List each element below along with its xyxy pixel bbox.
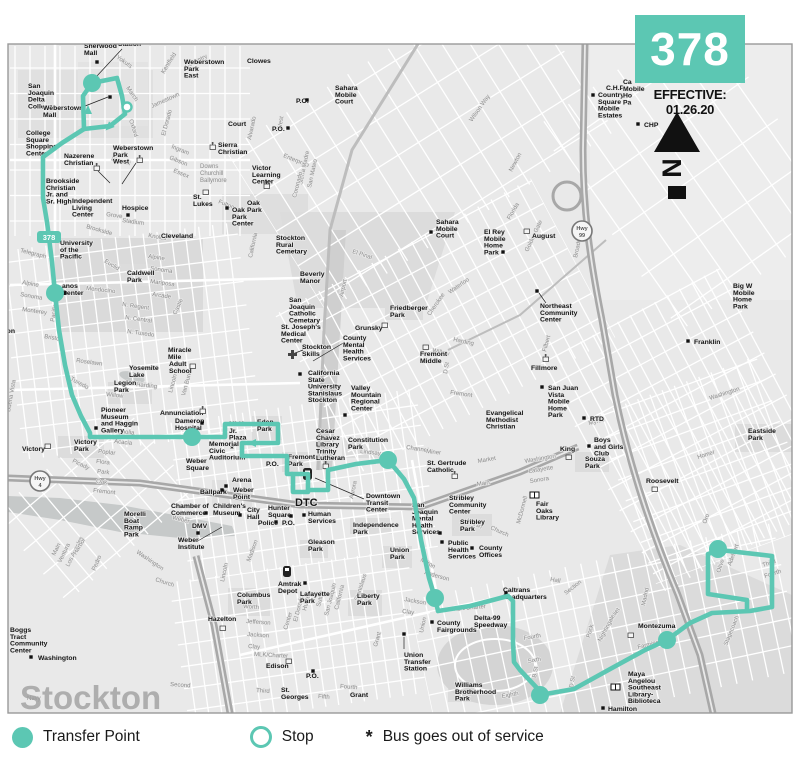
poi-marker	[302, 513, 305, 516]
stop-label: Stop	[282, 728, 314, 746]
poi-label: Edison	[266, 663, 289, 670]
poi-label: CHP	[644, 122, 659, 129]
poi-label: RTD	[590, 416, 604, 423]
compass-letter: N	[657, 158, 687, 178]
poi-label: Clowes	[247, 58, 271, 65]
poi-marker	[126, 213, 129, 216]
poi-marker	[311, 669, 314, 672]
poi-marker	[438, 531, 441, 534]
bldg-icon	[566, 455, 572, 460]
poi-marker	[601, 706, 604, 709]
street-label: Ballymore	[200, 178, 227, 184]
poi-marker	[220, 488, 223, 491]
poi-marker	[298, 372, 301, 375]
bldg-icon	[190, 364, 196, 369]
transfer-point-marker	[426, 589, 444, 607]
poi-marker	[108, 95, 111, 98]
asterisk-icon: *	[366, 727, 373, 748]
bldg-icon	[45, 444, 51, 449]
route-number: 378	[650, 22, 730, 76]
poi-label: Hazelton	[208, 616, 236, 623]
poi-marker	[591, 93, 594, 96]
transfer-point-icon	[12, 727, 33, 748]
poi-marker	[29, 655, 32, 658]
poi-marker	[305, 98, 308, 101]
poi-label: Chamber ofCommerce	[171, 503, 210, 517]
poi-marker	[303, 581, 306, 584]
poi-marker	[224, 484, 227, 487]
street-label: Downs	[200, 164, 218, 170]
poi-label: Washington	[38, 655, 77, 662]
transfer-point-marker	[531, 686, 549, 704]
poi-label: Montezuma	[638, 623, 676, 630]
legend-stop: Stop	[140, 726, 314, 748]
bldg-icon	[203, 190, 209, 195]
poi-label: Grunsky	[355, 325, 383, 332]
hwy-shield: Hwy99	[572, 221, 592, 241]
poi-marker	[238, 513, 241, 516]
bldg-icon	[524, 229, 530, 234]
poi-marker	[200, 421, 203, 424]
effective-date-label: EFFECTIVE: 01.26.20	[630, 87, 750, 117]
map-legend: Transfer Point Stop * Bus goes out of se…	[0, 715, 800, 759]
poi-marker	[582, 416, 585, 419]
poi-marker	[196, 531, 199, 534]
transfer-point-marker	[46, 284, 64, 302]
poi-marker	[402, 632, 405, 635]
book-icon	[530, 492, 539, 498]
poi-label: Roosevelt	[646, 478, 679, 485]
poi-marker	[274, 520, 277, 523]
book-icon	[611, 684, 620, 690]
poi-marker	[289, 514, 292, 517]
stop-marker	[123, 103, 132, 112]
poi-label: P.O.	[272, 126, 285, 133]
poi-marker	[286, 126, 289, 129]
transfer-point-label: Transfer Point	[43, 728, 140, 746]
poi-marker	[225, 206, 228, 209]
poi-marker	[94, 426, 97, 429]
poi-label: P.O.	[266, 461, 279, 468]
poi-label: Hospice	[122, 205, 149, 212]
poi-label: DTC	[295, 497, 318, 509]
transfer-point-marker	[83, 74, 101, 92]
bldg-icon	[382, 323, 388, 328]
poi-marker	[470, 546, 473, 549]
legend-out-of-service: * Bus goes out of service	[314, 727, 544, 748]
poi-label: Cleveland	[161, 233, 193, 240]
poi-marker	[440, 540, 443, 543]
street-label: Fourth	[340, 684, 358, 691]
poi-marker	[535, 289, 538, 292]
poi-marker	[204, 511, 207, 514]
transfer-point-marker	[379, 451, 397, 469]
street-label: Third	[256, 688, 270, 695]
poi-marker	[540, 385, 543, 388]
street-label: Fifth	[318, 694, 330, 701]
bldg-icon	[652, 487, 658, 492]
poi-marker	[501, 250, 504, 253]
poi-label: NazereneChristian	[64, 153, 94, 167]
poi-label: King	[560, 446, 575, 453]
poi-label: P.O.	[306, 673, 319, 680]
poi-label: CountyOffices	[479, 545, 503, 559]
poi-label: Court	[228, 121, 247, 128]
poi-label: WeberSquare	[186, 458, 209, 472]
poi-label: Arena	[232, 477, 251, 484]
poi-marker	[430, 620, 433, 623]
poi-marker	[587, 444, 590, 447]
poi-label: CityHall	[247, 507, 260, 521]
poi-label: August	[532, 233, 556, 240]
svg-text:378: 378	[43, 233, 56, 242]
poi-label: P.O.	[282, 520, 295, 527]
train-icon	[283, 566, 291, 577]
poi-marker	[429, 230, 432, 233]
poi-label: Victory	[22, 446, 45, 453]
poi-marker	[636, 122, 639, 125]
poi-label: Hamilton	[608, 706, 637, 713]
legend-transfer-point: Transfer Point	[0, 727, 140, 748]
poi-marker	[686, 339, 689, 342]
poi-label: HunterSquare	[268, 505, 291, 519]
poi-marker	[95, 60, 98, 63]
out-of-service-label: Bus goes out of service	[383, 728, 544, 746]
poi-label: Grant	[350, 692, 369, 699]
poi-label: DMV	[192, 523, 208, 530]
street-label: Churchill	[200, 171, 223, 177]
poi-label: OakPark	[247, 200, 262, 214]
poi-label: CountrySquareMobileEstates	[598, 92, 624, 119]
svg-text:Hwy: Hwy	[34, 476, 46, 482]
bldg-icon	[220, 626, 226, 631]
svg-text:Hwy: Hwy	[576, 226, 588, 232]
city-watermark: Stockton	[20, 679, 161, 716]
poi-label: Franklin	[694, 339, 720, 346]
transfer-point-marker	[658, 631, 676, 649]
bldg-icon	[423, 345, 429, 350]
hwy-shield: Hwy4	[30, 471, 50, 491]
bldg-icon	[286, 659, 292, 664]
poi-label: Fillmore	[531, 365, 558, 372]
svg-text:99: 99	[579, 233, 585, 239]
transfer-point-marker	[709, 540, 727, 558]
street-label: Clay	[402, 609, 415, 616]
transfer-point-marker	[183, 428, 201, 446]
poi-marker	[343, 413, 346, 416]
stop-icon	[250, 726, 272, 748]
bldg-icon	[628, 633, 634, 638]
street-label: Oak	[96, 479, 109, 486]
poi-label: Annunciation	[160, 410, 203, 417]
page: YokutsMarchOxfordKentfieldCoventryJamest…	[0, 0, 800, 764]
route-number-badge: 378	[635, 15, 745, 83]
street-label: Clay	[248, 644, 260, 651]
